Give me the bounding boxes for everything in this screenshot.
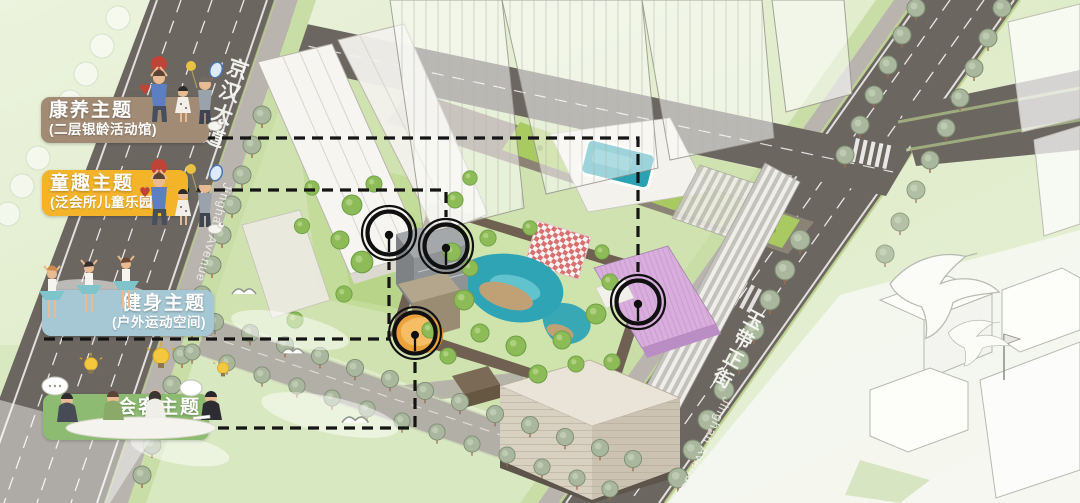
label-wellness-theme: 康养主题 (二层银龄活动馆) (41, 97, 209, 143)
label-fitness-theme: 健身主题 (户外运动空间) (42, 290, 214, 336)
label-children-theme: 童趣主题 (泛会所儿童乐园) (42, 170, 188, 216)
guest-subtitle: (泛会所专属空间) (51, 419, 201, 435)
label-guest-theme: 会客主题 (泛会所专属空间) (43, 394, 209, 440)
guest-title: 会客主题 (51, 397, 201, 419)
fitness-subtitle: (户外运动空间) (50, 315, 206, 331)
children-subtitle: (泛会所儿童乐园) (50, 195, 180, 211)
wellness-subtitle: (二层银龄活动馆) (49, 122, 201, 138)
wellness-title: 康养主题 (49, 100, 201, 122)
site-plan-rendering: 京汉大道 Jinghan Avenue 玉带正街 Jinghan Avenue … (0, 0, 1080, 503)
children-title: 童趣主题 (50, 173, 180, 195)
fitness-title: 健身主题 (50, 293, 206, 315)
